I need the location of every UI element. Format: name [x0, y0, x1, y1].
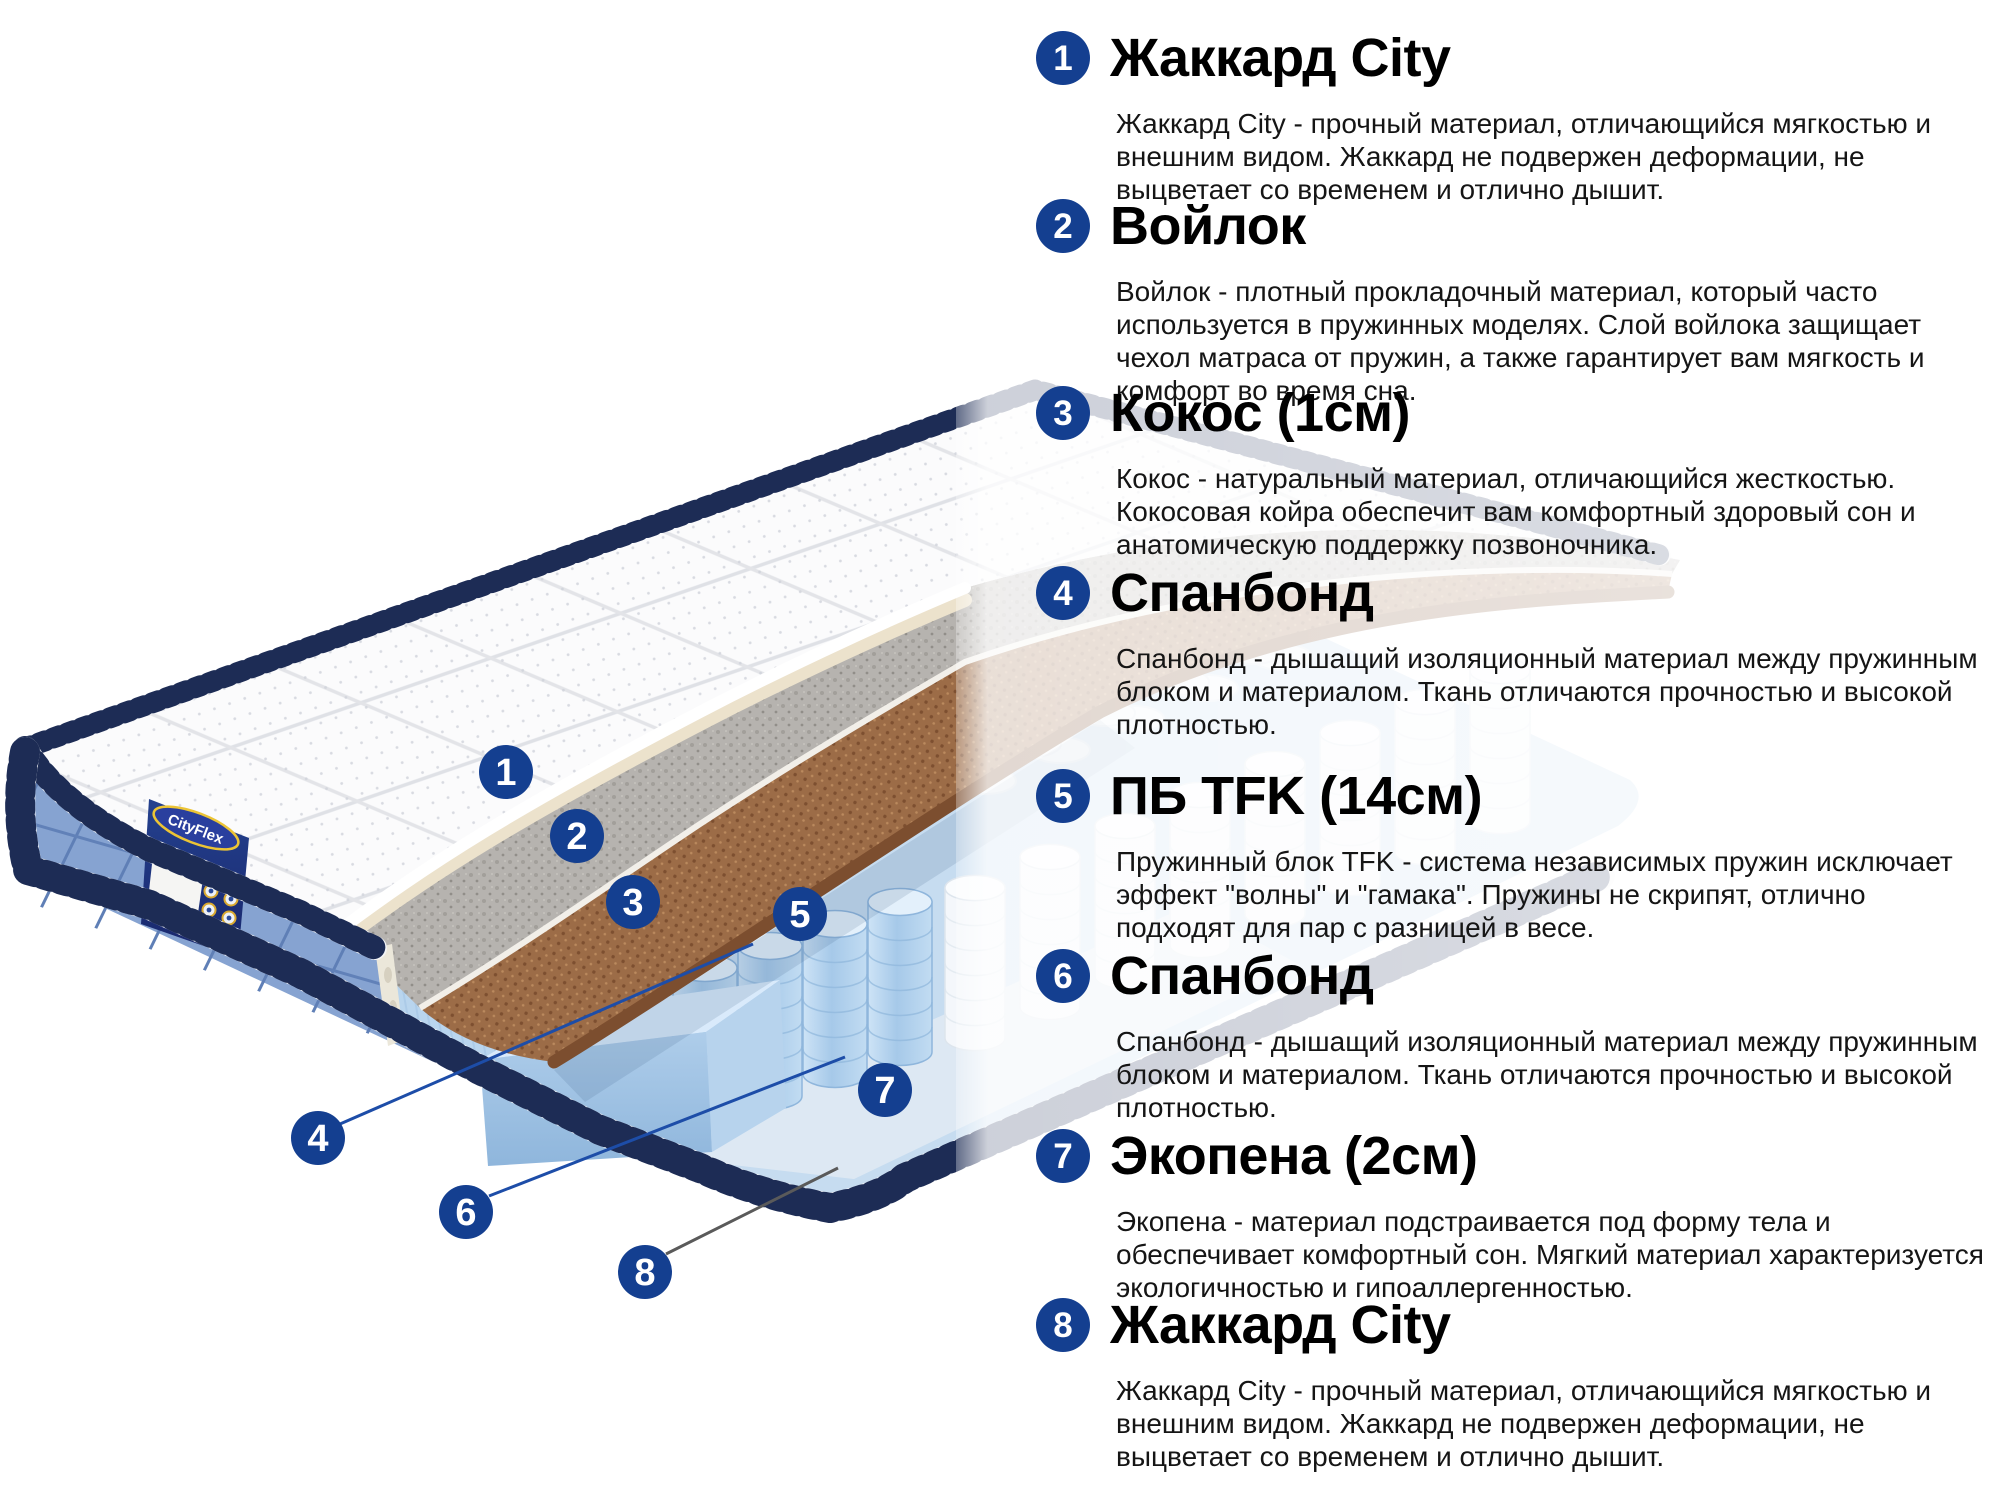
- legend-column: 1Жаккард CityЖаккард City - прочный мате…: [0, 0, 2000, 1500]
- legend-item-head: 6Спанбонд: [1036, 948, 1976, 1005]
- legend-item-title: Кокос (1см): [1110, 385, 1410, 442]
- legend-number-badge: 2: [1036, 199, 1090, 253]
- infographic-stage: CityFlex 12345678 1Жаккард CityЖаккард C…: [0, 0, 2000, 1500]
- legend-item-description: Жаккард City - прочный материал, отличаю…: [1116, 1374, 1992, 1473]
- legend-number-badge: 4: [1036, 566, 1090, 620]
- legend-item-title: Экопена (2см): [1110, 1128, 1478, 1185]
- legend-item-head: 8Жаккард City: [1036, 1297, 1976, 1354]
- legend-number-badge: 3: [1036, 386, 1090, 440]
- legend-item-description: Жаккард City - прочный материал, отличаю…: [1116, 107, 1992, 206]
- legend-item-head: 4Спанбонд: [1036, 565, 1976, 622]
- legend-item-title: Спанбонд: [1110, 948, 1374, 1005]
- legend-item-description: Экопена - материал подстраивается под фо…: [1116, 1205, 1992, 1304]
- legend-item-title: Жаккард City: [1110, 1297, 1451, 1354]
- legend-number-badge: 7: [1036, 1129, 1090, 1183]
- legend-item-description: Спанбонд - дышащий изоляционный материал…: [1116, 642, 1992, 741]
- legend-item-head: 3Кокос (1см): [1036, 385, 1976, 442]
- legend-item-title: ПБ TFK (14см): [1110, 768, 1482, 825]
- legend-item-title: Жаккард City: [1110, 30, 1451, 87]
- legend-item-6: 6СпанбондСпанбонд - дышащий изоляционный…: [1036, 948, 1976, 1124]
- legend-item-7: 7Экопена (2см)Экопена - материал подстра…: [1036, 1128, 1976, 1304]
- legend-item-3: 3Кокос (1см)Кокос - натуральный материал…: [1036, 385, 1976, 561]
- legend-number-badge: 5: [1036, 769, 1090, 823]
- legend-item-title: Войлок: [1110, 198, 1306, 255]
- legend-item-1: 1Жаккард CityЖаккард City - прочный мате…: [1036, 30, 1976, 206]
- legend-number-badge: 6: [1036, 949, 1090, 1003]
- legend-item-2: 2ВойлокВойлок - плотный прокладочный мат…: [1036, 198, 1976, 407]
- legend-item-description: Спанбонд - дышащий изоляционный материал…: [1116, 1025, 1992, 1124]
- legend-item-4: 4СпанбондСпанбонд - дышащий изоляционный…: [1036, 565, 1976, 741]
- legend-item-title: Спанбонд: [1110, 565, 1374, 622]
- legend-item-head: 1Жаккард City: [1036, 30, 1976, 87]
- legend-item-description: Пружинный блок TFK - система независимых…: [1116, 845, 1992, 944]
- legend-item-head: 2Войлок: [1036, 198, 1976, 255]
- legend-item-head: 5ПБ TFK (14см): [1036, 768, 1976, 825]
- legend-item-head: 7Экопена (2см): [1036, 1128, 1976, 1185]
- legend-item-description: Кокос - натуральный материал, отличающий…: [1116, 462, 1992, 561]
- legend-item-5: 5ПБ TFK (14см)Пружинный блок TFK - систе…: [1036, 768, 1976, 944]
- legend-item-8: 8Жаккард CityЖаккард City - прочный мате…: [1036, 1297, 1976, 1473]
- legend-number-badge: 8: [1036, 1298, 1090, 1352]
- legend-number-badge: 1: [1036, 31, 1090, 85]
